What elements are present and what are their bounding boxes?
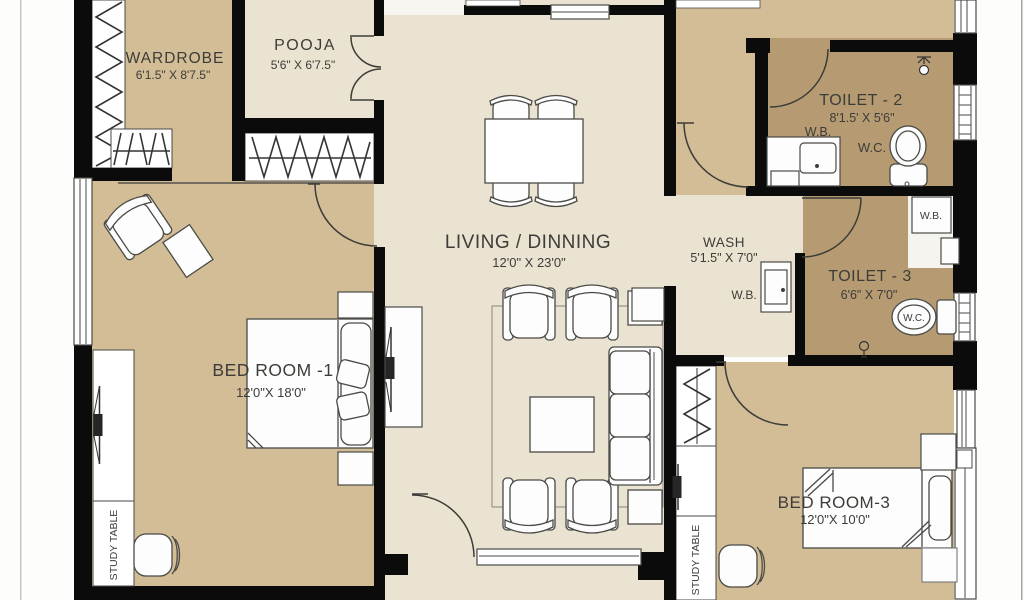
svg-text:12'0"X 18'0": 12'0"X 18'0" xyxy=(236,385,306,400)
svg-text:BED ROOM-3: BED ROOM-3 xyxy=(778,493,891,512)
svg-text:TOILET - 3: TOILET - 3 xyxy=(828,268,912,285)
svg-text:POOJA: POOJA xyxy=(274,37,336,54)
svg-text:BED ROOM -1: BED ROOM -1 xyxy=(212,360,333,380)
svg-text:LIVING / DINNING: LIVING / DINNING xyxy=(445,232,611,253)
svg-text:6'1.5" X 8'7.5": 6'1.5" X 8'7.5" xyxy=(136,68,210,82)
svg-text:STUDY TABLE: STUDY TABLE xyxy=(108,510,120,581)
svg-text:6'6" X 7'0": 6'6" X 7'0" xyxy=(841,288,898,302)
svg-text:8'1.5' X 5'6": 8'1.5' X 5'6" xyxy=(829,111,894,125)
svg-text:W.B.: W.B. xyxy=(731,288,756,302)
svg-text:W.B.: W.B. xyxy=(920,210,942,222)
svg-text:12'0"X 10'0": 12'0"X 10'0" xyxy=(800,512,870,527)
svg-text:W.C.: W.C. xyxy=(858,140,886,155)
svg-text:W.B.: W.B. xyxy=(805,125,831,139)
svg-text:STUDY TABLE: STUDY TABLE xyxy=(690,525,702,596)
svg-text:TOILET - 2: TOILET - 2 xyxy=(819,92,903,109)
svg-text:WARDROBE: WARDROBE xyxy=(126,50,225,67)
svg-text:WASH: WASH xyxy=(703,235,745,250)
svg-text:5'6" X 6'7.5": 5'6" X 6'7.5" xyxy=(271,58,335,72)
svg-text:W.C.: W.C. xyxy=(903,313,925,324)
svg-text:5'1.5" X 7'0": 5'1.5" X 7'0" xyxy=(690,251,757,265)
svg-text:12'0" X 23'0": 12'0" X 23'0" xyxy=(492,255,566,270)
